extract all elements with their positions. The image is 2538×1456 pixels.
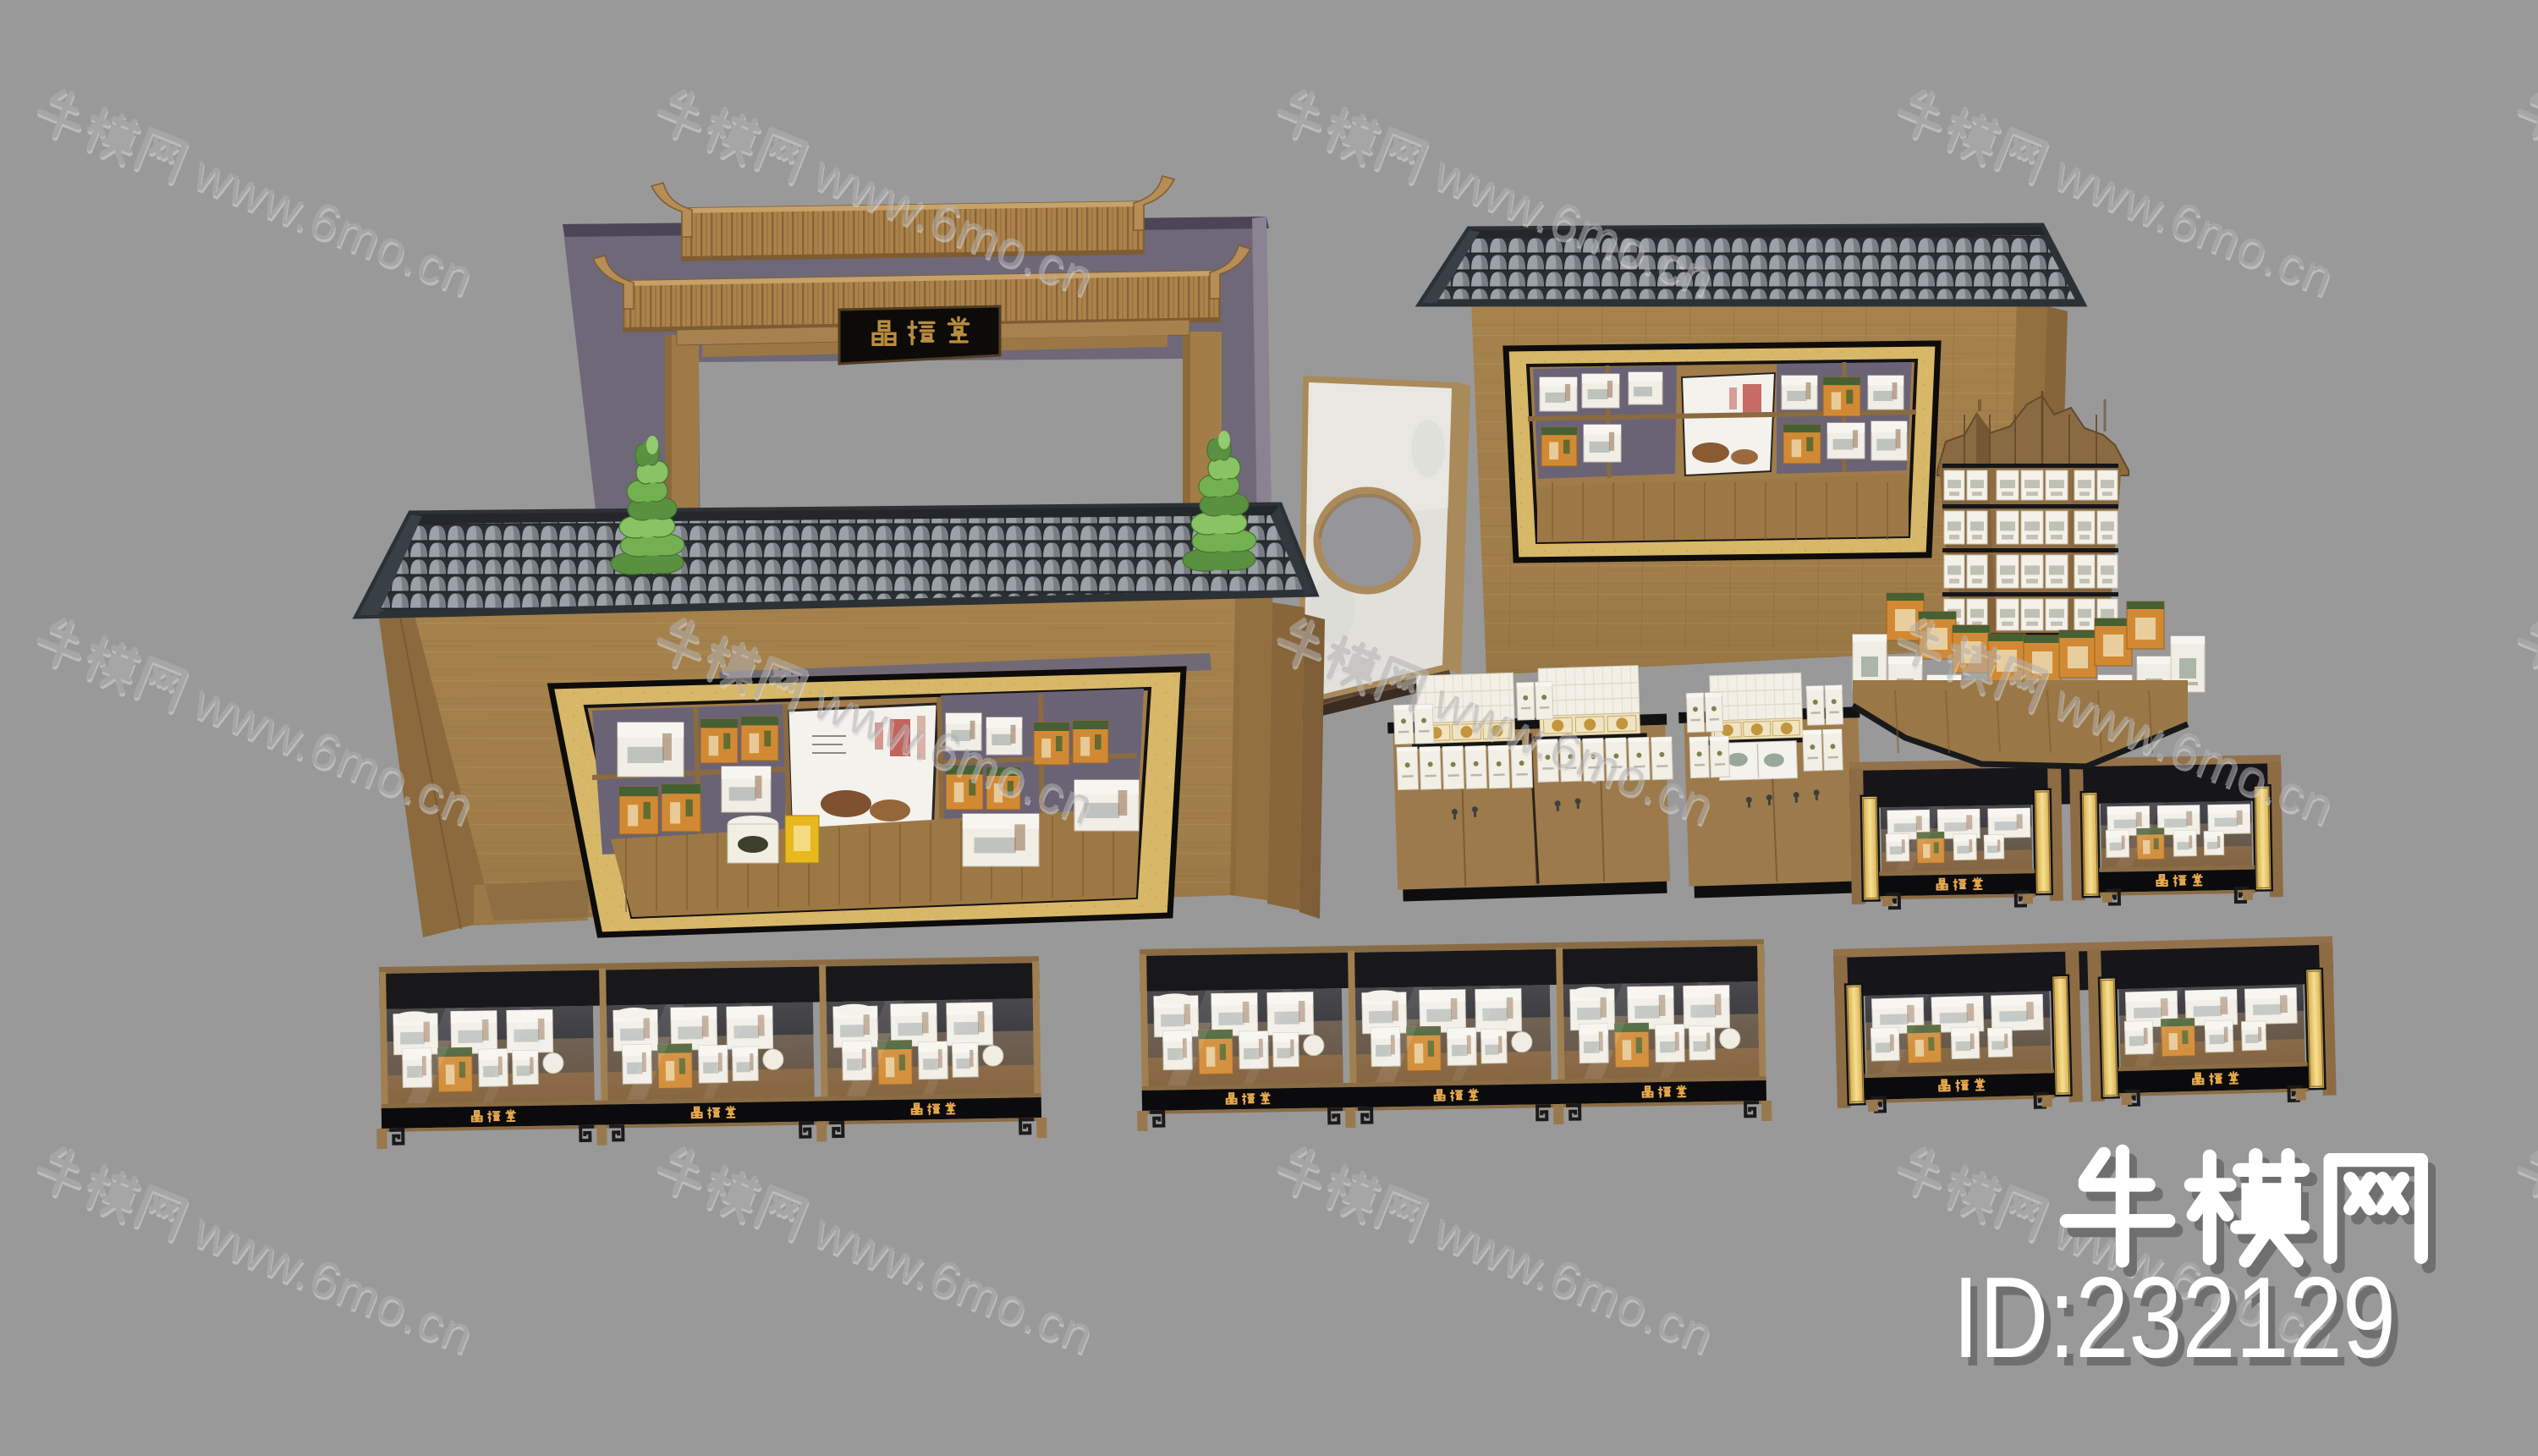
- svg-text:ID:232129: ID:232129: [1953, 1253, 2396, 1382]
